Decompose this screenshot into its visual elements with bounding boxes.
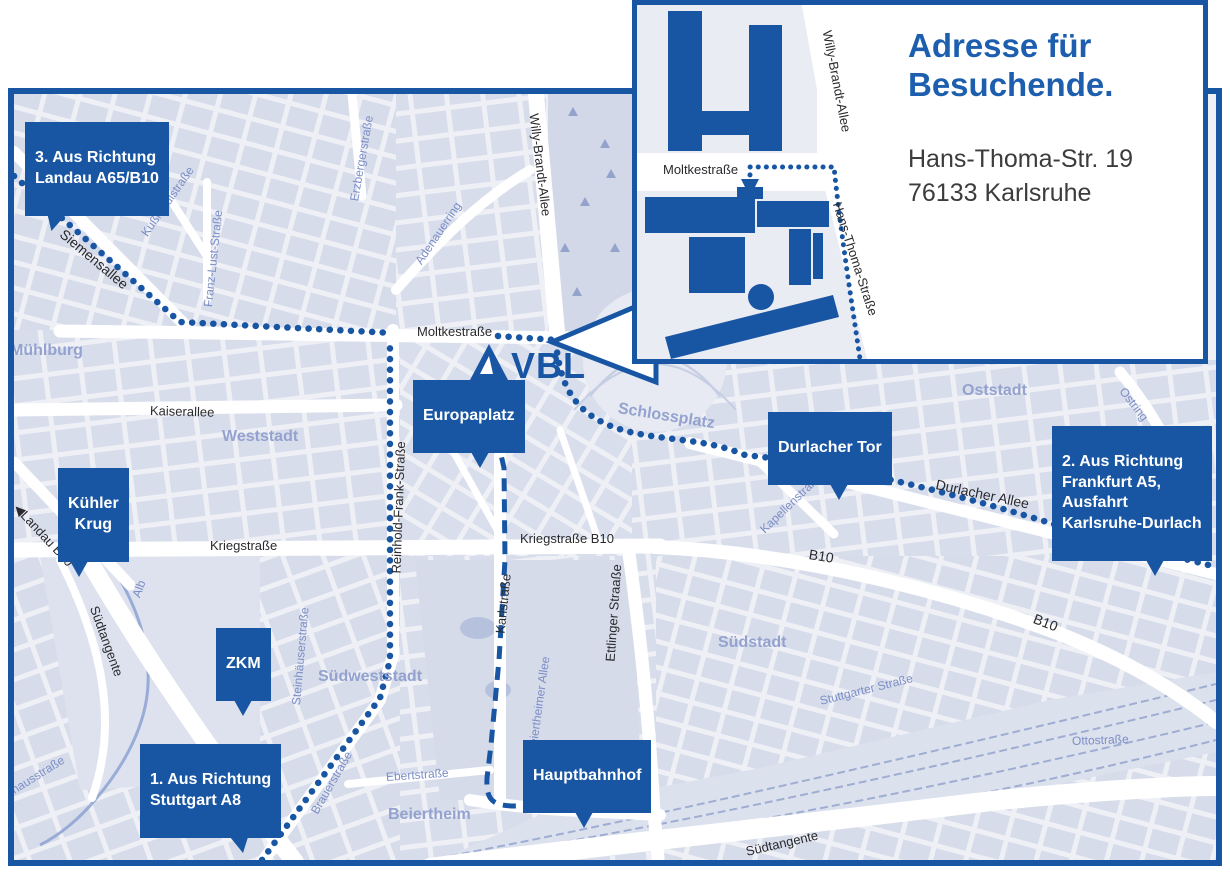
marker-stuttgart: 1. Aus Richtung Stuttgart A8 bbox=[140, 744, 281, 838]
marker-label: Kühler Krug bbox=[68, 495, 119, 532]
street-erzbergerstrasse: Erzbergerstraße bbox=[347, 114, 376, 202]
marker-hauptbahnhof: Hauptbahnhof bbox=[523, 740, 651, 813]
street-suedtangente-west: Südtangente bbox=[87, 604, 126, 678]
marker-frankfurt: 2. Aus Richtung Frankfurt A5, Ausfahrt K… bbox=[1052, 426, 1212, 561]
marker-label: 1. Aus Richtung Stuttgart A8 bbox=[150, 771, 271, 808]
address-line-2: 76133 Karlsruhe bbox=[908, 177, 1133, 211]
street-kriegstrasse-b10: Kriegstraße B10 bbox=[520, 531, 614, 546]
district-suedweststadt: Südweststadt bbox=[318, 668, 422, 686]
marker-durlacher-tor: Durlacher Tor bbox=[768, 412, 892, 485]
marker-tail bbox=[1146, 560, 1164, 576]
marker-label: Durlacher Tor bbox=[778, 439, 882, 456]
marker-europaplatz: Europaplatz bbox=[413, 380, 525, 453]
marker-tail bbox=[230, 837, 252, 853]
street-karlstrasse: Karlstraße bbox=[493, 573, 514, 634]
marker-landau: 3. Aus Richtung Landau A65/B10 bbox=[25, 122, 169, 216]
street-ebertstrasse: Ebertstraße bbox=[386, 766, 450, 784]
marker-label: Hauptbahnhof bbox=[533, 767, 641, 784]
street-ostring-north: Ostring bbox=[1116, 385, 1151, 424]
street-suedtangente-south: Südtangente bbox=[744, 828, 819, 859]
street-siemensallee: Siemensallee bbox=[57, 226, 132, 292]
district-weststadt: Weststadt bbox=[222, 428, 298, 446]
street-kriegstrasse: Kriegstraße bbox=[210, 538, 277, 553]
marker-tail bbox=[234, 700, 252, 716]
marker-zkm: ZKM bbox=[216, 628, 271, 701]
district-schlossplatz: Schlossplatz bbox=[617, 400, 716, 433]
street-kaiserallee: Kaiserallee bbox=[150, 403, 215, 420]
street-durlacher-allee: Durlacher Allee bbox=[934, 476, 1030, 511]
inset-heading: Adresse für Besuchende. bbox=[908, 27, 1208, 104]
district-beiertheim: Beiertheim bbox=[388, 806, 471, 824]
marker-tail bbox=[575, 812, 593, 828]
marker-label: 3. Aus Richtung Landau A65/B10 bbox=[35, 149, 159, 186]
marker-tail bbox=[70, 561, 88, 577]
marker-kuehler-krug: Kühler Krug bbox=[58, 468, 129, 562]
street-ettlinger-strasse: Ettlinger Straaße bbox=[603, 564, 625, 662]
address-inset-card: Moltkestraße Willy-Brandt-Allee Hans-Tho… bbox=[632, 0, 1208, 364]
street-brauerstrasse: Brauerstraße bbox=[308, 749, 355, 817]
marker-label: ZKM bbox=[226, 655, 261, 672]
street-b10-west: B10 bbox=[808, 546, 835, 566]
district-suedstadt: Südstadt bbox=[718, 634, 786, 652]
street-ottostrasse: Ottostraße bbox=[1072, 732, 1129, 748]
street-adenauerring: Adenauerring bbox=[412, 199, 464, 267]
street-alb: Alb bbox=[129, 578, 148, 599]
marker-tail bbox=[830, 484, 848, 500]
marker-tail bbox=[42, 215, 65, 231]
marker-tail bbox=[471, 452, 489, 468]
marker-label: Europaplatz bbox=[423, 407, 515, 424]
street-franz-lust-strasse: Franz-Lust-Straße bbox=[201, 209, 225, 307]
street-steinhaeuserstrasse: Steinhäuserstraße bbox=[289, 607, 311, 706]
street-stuttgarter-strasse: Stuttgarter Straße bbox=[818, 671, 914, 708]
street-moltkestrasse: Moltkestraße bbox=[417, 324, 492, 339]
address-line-1: Hans-Thoma-Str. 19 bbox=[908, 143, 1133, 177]
inset-street-moltkestrasse: Moltkestraße bbox=[663, 162, 738, 177]
district-muehlburg: Mühlburg bbox=[14, 342, 83, 360]
karlsruhe-directions-map: VBL Moltkestraße Kaiserallee Kriegstraße… bbox=[0, 0, 1230, 874]
marker-label: 2. Aus Richtung Frankfurt A5, Ausfahrt K… bbox=[1062, 453, 1202, 531]
street-willy-brandt-allee: Willy-Brandt-Allee bbox=[527, 113, 554, 217]
district-oststadt: Oststadt bbox=[962, 382, 1027, 400]
street-pulverhausstrasse-partial: lverhausstraße bbox=[14, 753, 67, 807]
inset-address: Hans-Thoma-Str. 19 76133 Karlsruhe bbox=[908, 143, 1133, 211]
street-reinhold-frank-strasse: Reinhold-Frank-Straße bbox=[389, 441, 409, 574]
street-b10-east: B10 bbox=[1031, 611, 1060, 635]
